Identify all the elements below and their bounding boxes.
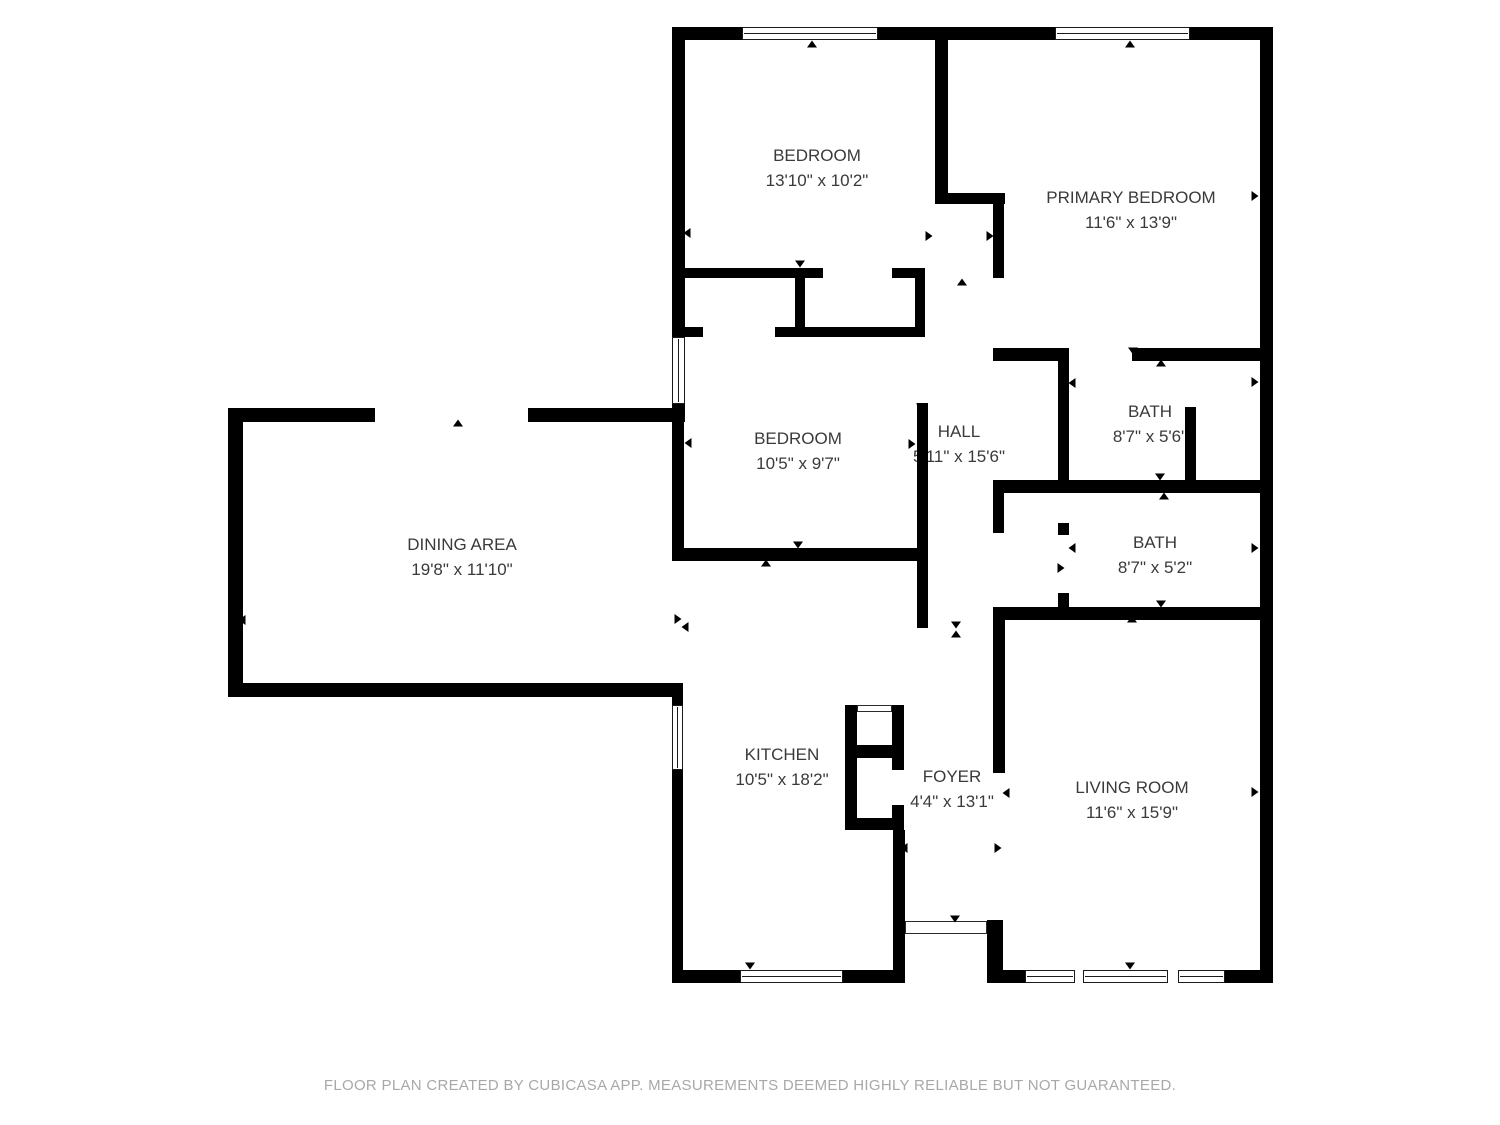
room-name: FOYER xyxy=(910,764,994,789)
direction-marker-icon xyxy=(950,916,960,923)
direction-marker-icon xyxy=(957,279,967,286)
room-dimensions: 11'6" x 13'9" xyxy=(1046,210,1215,235)
room-dimensions: 10'5" x 9'7" xyxy=(754,451,842,476)
room-dimensions: 19'8" x 11'10" xyxy=(407,557,517,582)
room-name: PRIMARY BEDROOM xyxy=(1046,185,1215,210)
direction-marker-icon xyxy=(995,843,1002,853)
direction-marker-icon xyxy=(239,615,246,625)
direction-marker-icon xyxy=(921,441,928,451)
wall xyxy=(685,268,823,278)
room-name: KITCHEN xyxy=(735,742,828,767)
direction-marker-icon xyxy=(1252,377,1259,387)
direction-marker-icon xyxy=(1156,601,1166,608)
direction-marker-icon xyxy=(1252,543,1259,553)
room-label-living-room: LIVING ROOM 11'6" x 15'9" xyxy=(1075,775,1188,825)
room-label-kitchen: KITCHEN 10'5" x 18'2" xyxy=(735,742,828,792)
window xyxy=(1178,970,1225,983)
wall xyxy=(1260,27,1273,983)
wall xyxy=(878,27,1055,40)
door-threshold xyxy=(857,705,892,712)
direction-marker-icon xyxy=(909,439,916,449)
direction-marker-icon xyxy=(1125,963,1135,970)
window-pane-line xyxy=(1085,976,1166,978)
window-pane-line xyxy=(1180,976,1223,978)
wall xyxy=(795,278,805,328)
room-dimensions: 8'7" x 5'2" xyxy=(1118,555,1192,580)
wall xyxy=(993,490,1004,533)
wall xyxy=(892,705,904,770)
direction-marker-icon xyxy=(916,404,926,411)
window-pane-line xyxy=(1027,976,1073,978)
room-dimensions: 8'7" x 5'6" xyxy=(1113,424,1187,449)
direction-marker-icon xyxy=(987,231,994,241)
wall xyxy=(685,327,703,337)
wall xyxy=(993,204,1004,278)
room-name: BEDROOM xyxy=(754,426,842,451)
wall xyxy=(672,770,683,983)
room-dimensions: 11'6" x 15'9" xyxy=(1075,800,1188,825)
wall xyxy=(917,548,928,628)
wall xyxy=(993,348,1068,361)
room-name: BATH xyxy=(1118,530,1192,555)
wall xyxy=(1003,970,1025,983)
direction-marker-icon xyxy=(1155,474,1165,481)
room-label-dining-area: DINING AREA 19'8" x 11'10" xyxy=(407,532,517,582)
direction-marker-icon xyxy=(685,438,692,448)
direction-marker-icon xyxy=(1069,543,1076,553)
direction-marker-icon xyxy=(675,614,682,624)
room-dimensions: 4'4" x 13'1" xyxy=(910,789,994,814)
wall xyxy=(1058,348,1069,490)
room-label-foyer: FOYER 4'4" x 13'1" xyxy=(910,764,994,814)
direction-marker-icon xyxy=(1252,787,1259,797)
room-label-bedroom-middle: BEDROOM 10'5" x 9'7" xyxy=(754,426,842,476)
wall xyxy=(1058,593,1069,608)
window xyxy=(1055,27,1190,40)
direction-marker-icon xyxy=(1069,378,1076,388)
room-label-primary-bedroom: PRIMARY BEDROOM 11'6" x 13'9" xyxy=(1046,185,1215,235)
door-threshold xyxy=(905,921,987,934)
wall xyxy=(528,408,675,422)
direction-marker-icon xyxy=(901,843,908,853)
direction-marker-icon xyxy=(1125,41,1135,48)
wall xyxy=(228,408,243,697)
direction-marker-icon xyxy=(453,684,463,691)
window-pane-line xyxy=(678,339,680,402)
window xyxy=(672,705,683,770)
direction-marker-icon xyxy=(684,228,691,238)
direction-marker-icon xyxy=(1252,191,1259,201)
window xyxy=(742,27,878,40)
direction-marker-icon xyxy=(807,41,817,48)
footer-disclaimer: FLOOR PLAN CREATED BY CUBICASA APP. MEAS… xyxy=(0,1077,1500,1094)
room-name: BATH xyxy=(1113,399,1187,424)
wall xyxy=(672,422,684,561)
floor-plan: BEDROOM 13'10" x 10'2" PRIMARY BEDROOM 1… xyxy=(0,0,1500,1125)
room-label-bedroom-top: BEDROOM 13'10" x 10'2" xyxy=(766,143,869,193)
room-name: DINING AREA xyxy=(407,532,517,557)
direction-marker-icon xyxy=(951,631,961,638)
wall xyxy=(672,548,928,561)
wall xyxy=(935,27,948,193)
window-pane-line xyxy=(677,707,679,768)
wall xyxy=(987,920,1003,983)
wall xyxy=(1058,523,1069,535)
wall xyxy=(993,480,1263,493)
direction-marker-icon xyxy=(795,330,805,337)
wall xyxy=(672,970,740,983)
window xyxy=(740,970,843,983)
direction-marker-icon xyxy=(745,963,755,970)
window xyxy=(1025,970,1075,983)
direction-marker-icon xyxy=(1159,493,1169,500)
room-name: BEDROOM xyxy=(766,143,869,168)
direction-marker-icon xyxy=(1003,788,1010,798)
wall xyxy=(1185,407,1196,483)
direction-marker-icon xyxy=(793,542,803,549)
wall xyxy=(993,620,1005,773)
room-dimensions: 13'10" x 10'2" xyxy=(766,168,869,193)
direction-marker-icon xyxy=(951,622,961,629)
wall xyxy=(672,683,683,705)
window-pane-line xyxy=(742,976,841,978)
direction-marker-icon xyxy=(1128,348,1138,355)
room-label-bath-2: BATH 8'7" x 5'2" xyxy=(1118,530,1192,580)
wall xyxy=(917,403,928,548)
direction-marker-icon xyxy=(1058,563,1065,573)
wall xyxy=(1225,970,1273,983)
wall xyxy=(845,705,857,830)
direction-marker-icon xyxy=(682,622,689,632)
window-pane-line xyxy=(744,33,876,35)
window xyxy=(1083,970,1168,983)
wall xyxy=(935,193,1005,204)
room-dimensions: 10'5" x 18'2" xyxy=(735,767,828,792)
wall xyxy=(845,818,903,830)
room-label-bath-1: BATH 8'7" x 5'6" xyxy=(1113,399,1187,449)
wall xyxy=(228,408,375,422)
room-name: LIVING ROOM xyxy=(1075,775,1188,800)
wall xyxy=(672,27,685,337)
direction-marker-icon xyxy=(761,560,771,567)
wall xyxy=(845,745,903,758)
window-pane-line xyxy=(1057,33,1188,35)
direction-marker-icon xyxy=(1127,616,1137,623)
window xyxy=(672,337,685,404)
direction-marker-icon xyxy=(926,231,933,241)
direction-marker-icon xyxy=(1156,360,1166,367)
wall xyxy=(1132,348,1263,361)
direction-marker-icon xyxy=(795,261,805,268)
direction-marker-icon xyxy=(453,420,463,427)
